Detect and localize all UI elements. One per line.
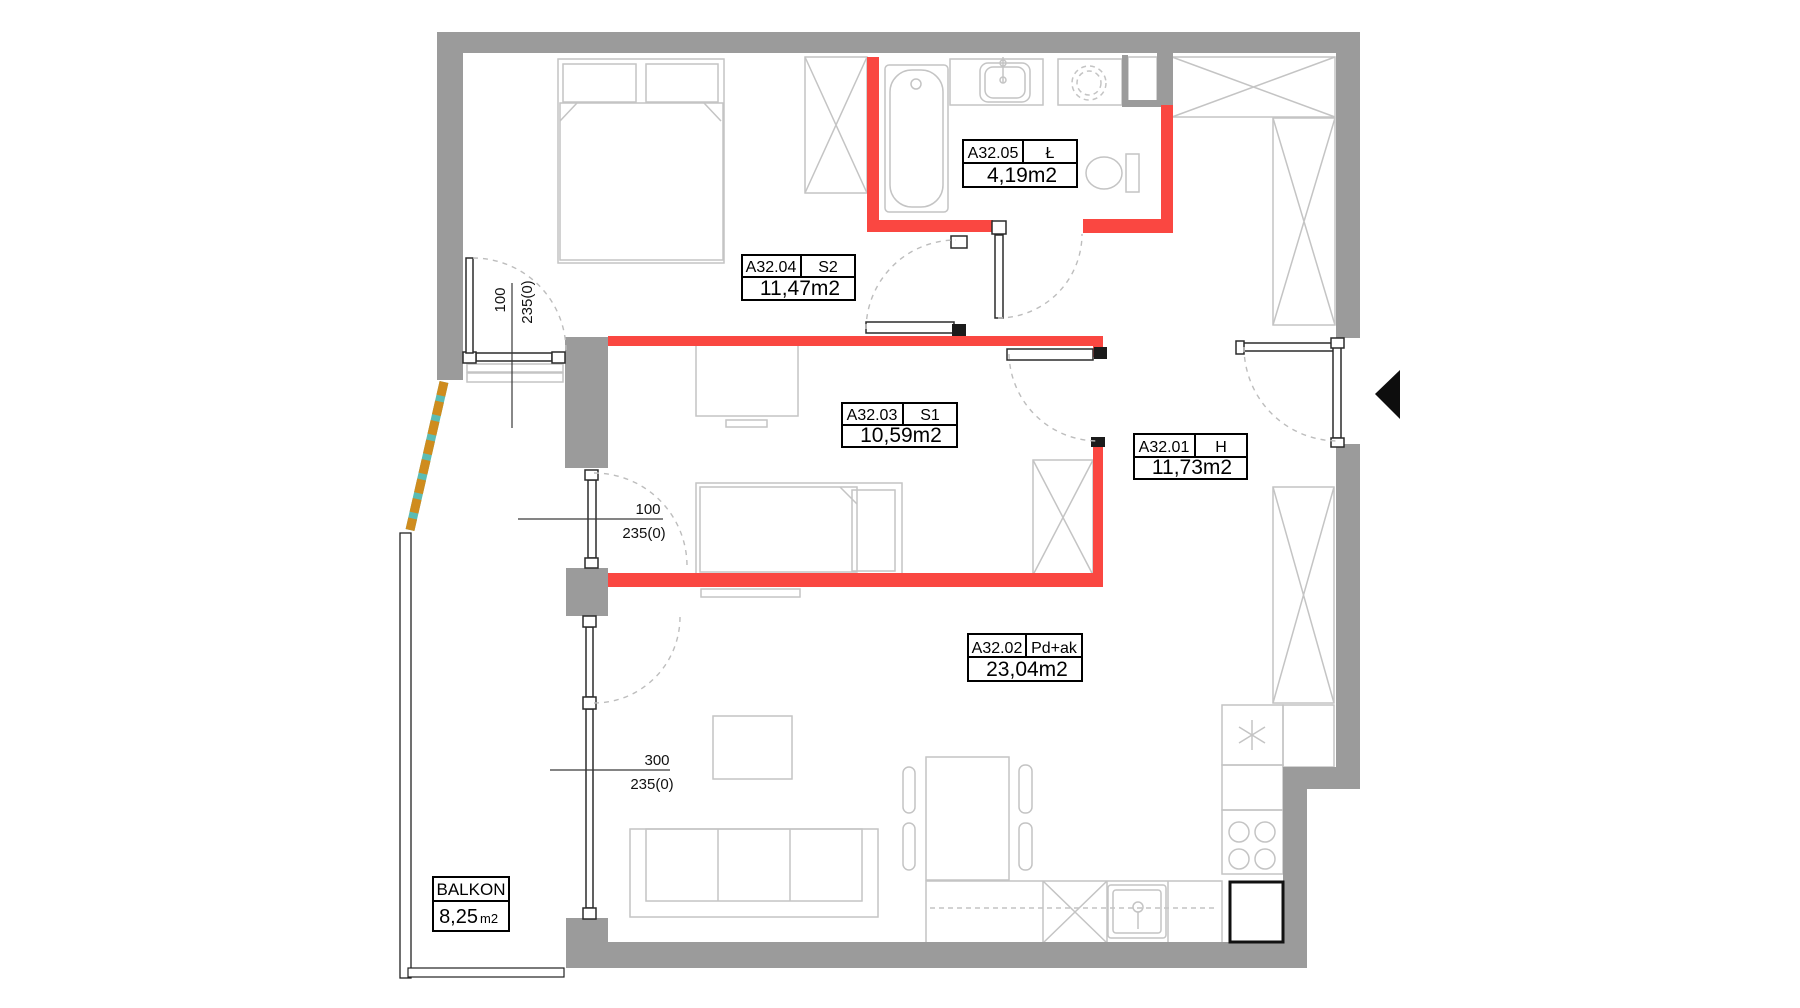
kitchen-cabinet <box>1283 705 1334 767</box>
room-area: 11,73m2 <box>1152 456 1232 479</box>
door-threshold <box>476 353 552 361</box>
room-name: H <box>1215 439 1227 456</box>
door-swing-arc <box>1244 347 1337 441</box>
stove <box>1222 810 1283 874</box>
furniture-layer <box>558 57 1335 943</box>
s1-room-door <box>1007 347 1107 447</box>
kitchen-sink <box>1108 885 1166 938</box>
room-area: 23,04m2 <box>986 658 1068 681</box>
dimension-height: 235(0) <box>622 525 665 542</box>
room-code: A32.02 <box>972 640 1023 657</box>
dining-chair <box>903 767 915 813</box>
room-code: A32.01 <box>1139 439 1190 456</box>
wall-top <box>437 32 1360 53</box>
door-leaf <box>466 258 473 353</box>
bathroom-door <box>951 221 1082 318</box>
dining-table <box>903 757 1032 880</box>
room-name: Pd+ak <box>1031 640 1078 657</box>
washbasin <box>950 57 1043 105</box>
balcony-railing <box>400 533 411 978</box>
sliding-panel <box>1239 343 1337 351</box>
dimension-height: 235(0) <box>630 776 673 793</box>
wardrobe-s1 <box>1033 460 1093 575</box>
wall-bottom <box>566 942 1307 968</box>
room-area: 10,59m2 <box>860 424 942 447</box>
door-hinge <box>1094 347 1107 359</box>
wardrobe-hall-top <box>1172 57 1335 117</box>
balcony-label: BALKON 8,25 m2 <box>433 877 509 931</box>
wall-balcony-column <box>565 337 608 468</box>
room-label-living: A32.02 Pd+ak 23,04m2 <box>968 634 1082 681</box>
bathtub <box>885 65 948 212</box>
door-jamb <box>1331 438 1344 447</box>
dimension-living-window: 300 235(0) <box>550 752 674 793</box>
door-leaf <box>1333 347 1341 438</box>
wall-balcony-block <box>566 568 608 616</box>
door-jamb <box>951 236 967 248</box>
fridge <box>1222 705 1283 765</box>
dimension-width: 100 <box>492 287 509 312</box>
balcony-slab-edge <box>408 968 564 977</box>
room-code: A32.05 <box>968 145 1019 162</box>
shelf <box>701 589 800 597</box>
wall-duct-stub <box>1157 53 1173 107</box>
s2-balcony-door <box>463 258 566 382</box>
entrance-door <box>1236 338 1400 447</box>
room-name: Ł <box>1046 145 1055 162</box>
window-frame <box>586 709 593 908</box>
duct-niche <box>1128 57 1157 101</box>
door-leaf <box>995 235 1003 318</box>
dining-chair <box>903 823 915 870</box>
washing-machine <box>1058 59 1122 105</box>
kitchen-counter <box>926 881 1222 943</box>
door-jamb <box>552 352 565 363</box>
red-wall-s1-bottom <box>608 573 1103 587</box>
wardrobe-hall-lower <box>1273 487 1334 703</box>
balcony-area: 8,25 <box>439 906 478 928</box>
wall-end-cap <box>1091 437 1105 447</box>
room-area: 11,47m2 <box>760 277 840 300</box>
door-hinge <box>952 324 966 336</box>
door-hinge <box>992 221 1006 234</box>
door-swing-arc <box>594 617 680 703</box>
red-wall-s1-right <box>1093 446 1103 577</box>
red-wall-middle <box>608 336 1103 346</box>
balcony-divider <box>410 382 444 530</box>
room-code: A32.03 <box>847 407 898 424</box>
room-area: 4,19m2 <box>987 164 1057 187</box>
door-leaf <box>586 627 593 697</box>
room-name: S2 <box>818 259 838 276</box>
panel-cap <box>1236 341 1244 354</box>
wall-step <box>1283 767 1360 789</box>
window-jamb <box>583 616 596 627</box>
room-name: S1 <box>920 407 940 424</box>
wall-duct-stub <box>1122 100 1158 107</box>
dimension-width: 100 <box>635 501 660 518</box>
room-code: A32.04 <box>746 259 797 276</box>
door-swing-arc <box>1009 354 1098 441</box>
door-leaf <box>1007 349 1093 360</box>
dimension-height: 235(0) <box>519 280 536 323</box>
desk <box>696 345 798 427</box>
room-label-bath: A32.05 Ł 4,19m2 <box>963 140 1077 187</box>
kitchen-cabinet <box>1222 765 1283 810</box>
window-jamb <box>583 908 596 919</box>
dining-chair <box>1019 765 1032 813</box>
wall-duct-stub <box>1122 55 1128 105</box>
red-wall-bath-bottom-right <box>1083 219 1173 233</box>
sofa <box>630 829 878 917</box>
wall-right-lower <box>1283 789 1307 968</box>
s2-room-door <box>866 240 966 336</box>
wardrobe-hall-right <box>1273 118 1335 325</box>
balcony-area-unit: m2 <box>480 911 498 926</box>
dining-chair <box>1019 823 1032 870</box>
door-jamb <box>585 470 598 480</box>
wall-right-mid <box>1336 444 1360 789</box>
wall-bottom-left-block <box>566 918 608 944</box>
wall-left <box>437 32 463 380</box>
room-label-hall: A32.01 H 11,73m2 <box>1134 434 1247 479</box>
door-jamb <box>585 558 598 568</box>
red-wall-bath-left <box>867 57 879 232</box>
wall-right-upper <box>1336 32 1360 338</box>
door-leaf <box>866 322 954 333</box>
entrance-marker-icon <box>1375 370 1400 419</box>
door-swing-arc <box>998 234 1082 318</box>
room-label-s1: A32.03 S1 10,59m2 <box>842 403 957 447</box>
single-bed <box>696 483 902 576</box>
window-sill <box>467 373 563 382</box>
door-hinge <box>1331 338 1344 348</box>
room-label-s2: A32.04 S2 11,47m2 <box>742 255 855 300</box>
dimension-width: 300 <box>644 752 669 769</box>
double-bed <box>558 59 724 263</box>
window-sill <box>467 364 563 372</box>
red-wall-bath-bottom-left <box>867 220 993 232</box>
coffee-table <box>713 716 792 779</box>
balcony-name: BALKON <box>437 880 506 899</box>
floor-plan: 100 235(0) 100 235(0) 300 235(0) A32.04 … <box>0 0 1800 1008</box>
red-wall-corridor <box>1161 105 1173 233</box>
shaft <box>1230 882 1283 942</box>
wardrobe-s2 <box>805 57 867 193</box>
toilet <box>1086 154 1139 192</box>
floor-plan-drawing: 100 235(0) 100 235(0) 300 235(0) A32.04 … <box>0 0 1800 1008</box>
door-swing-arc <box>866 240 956 329</box>
